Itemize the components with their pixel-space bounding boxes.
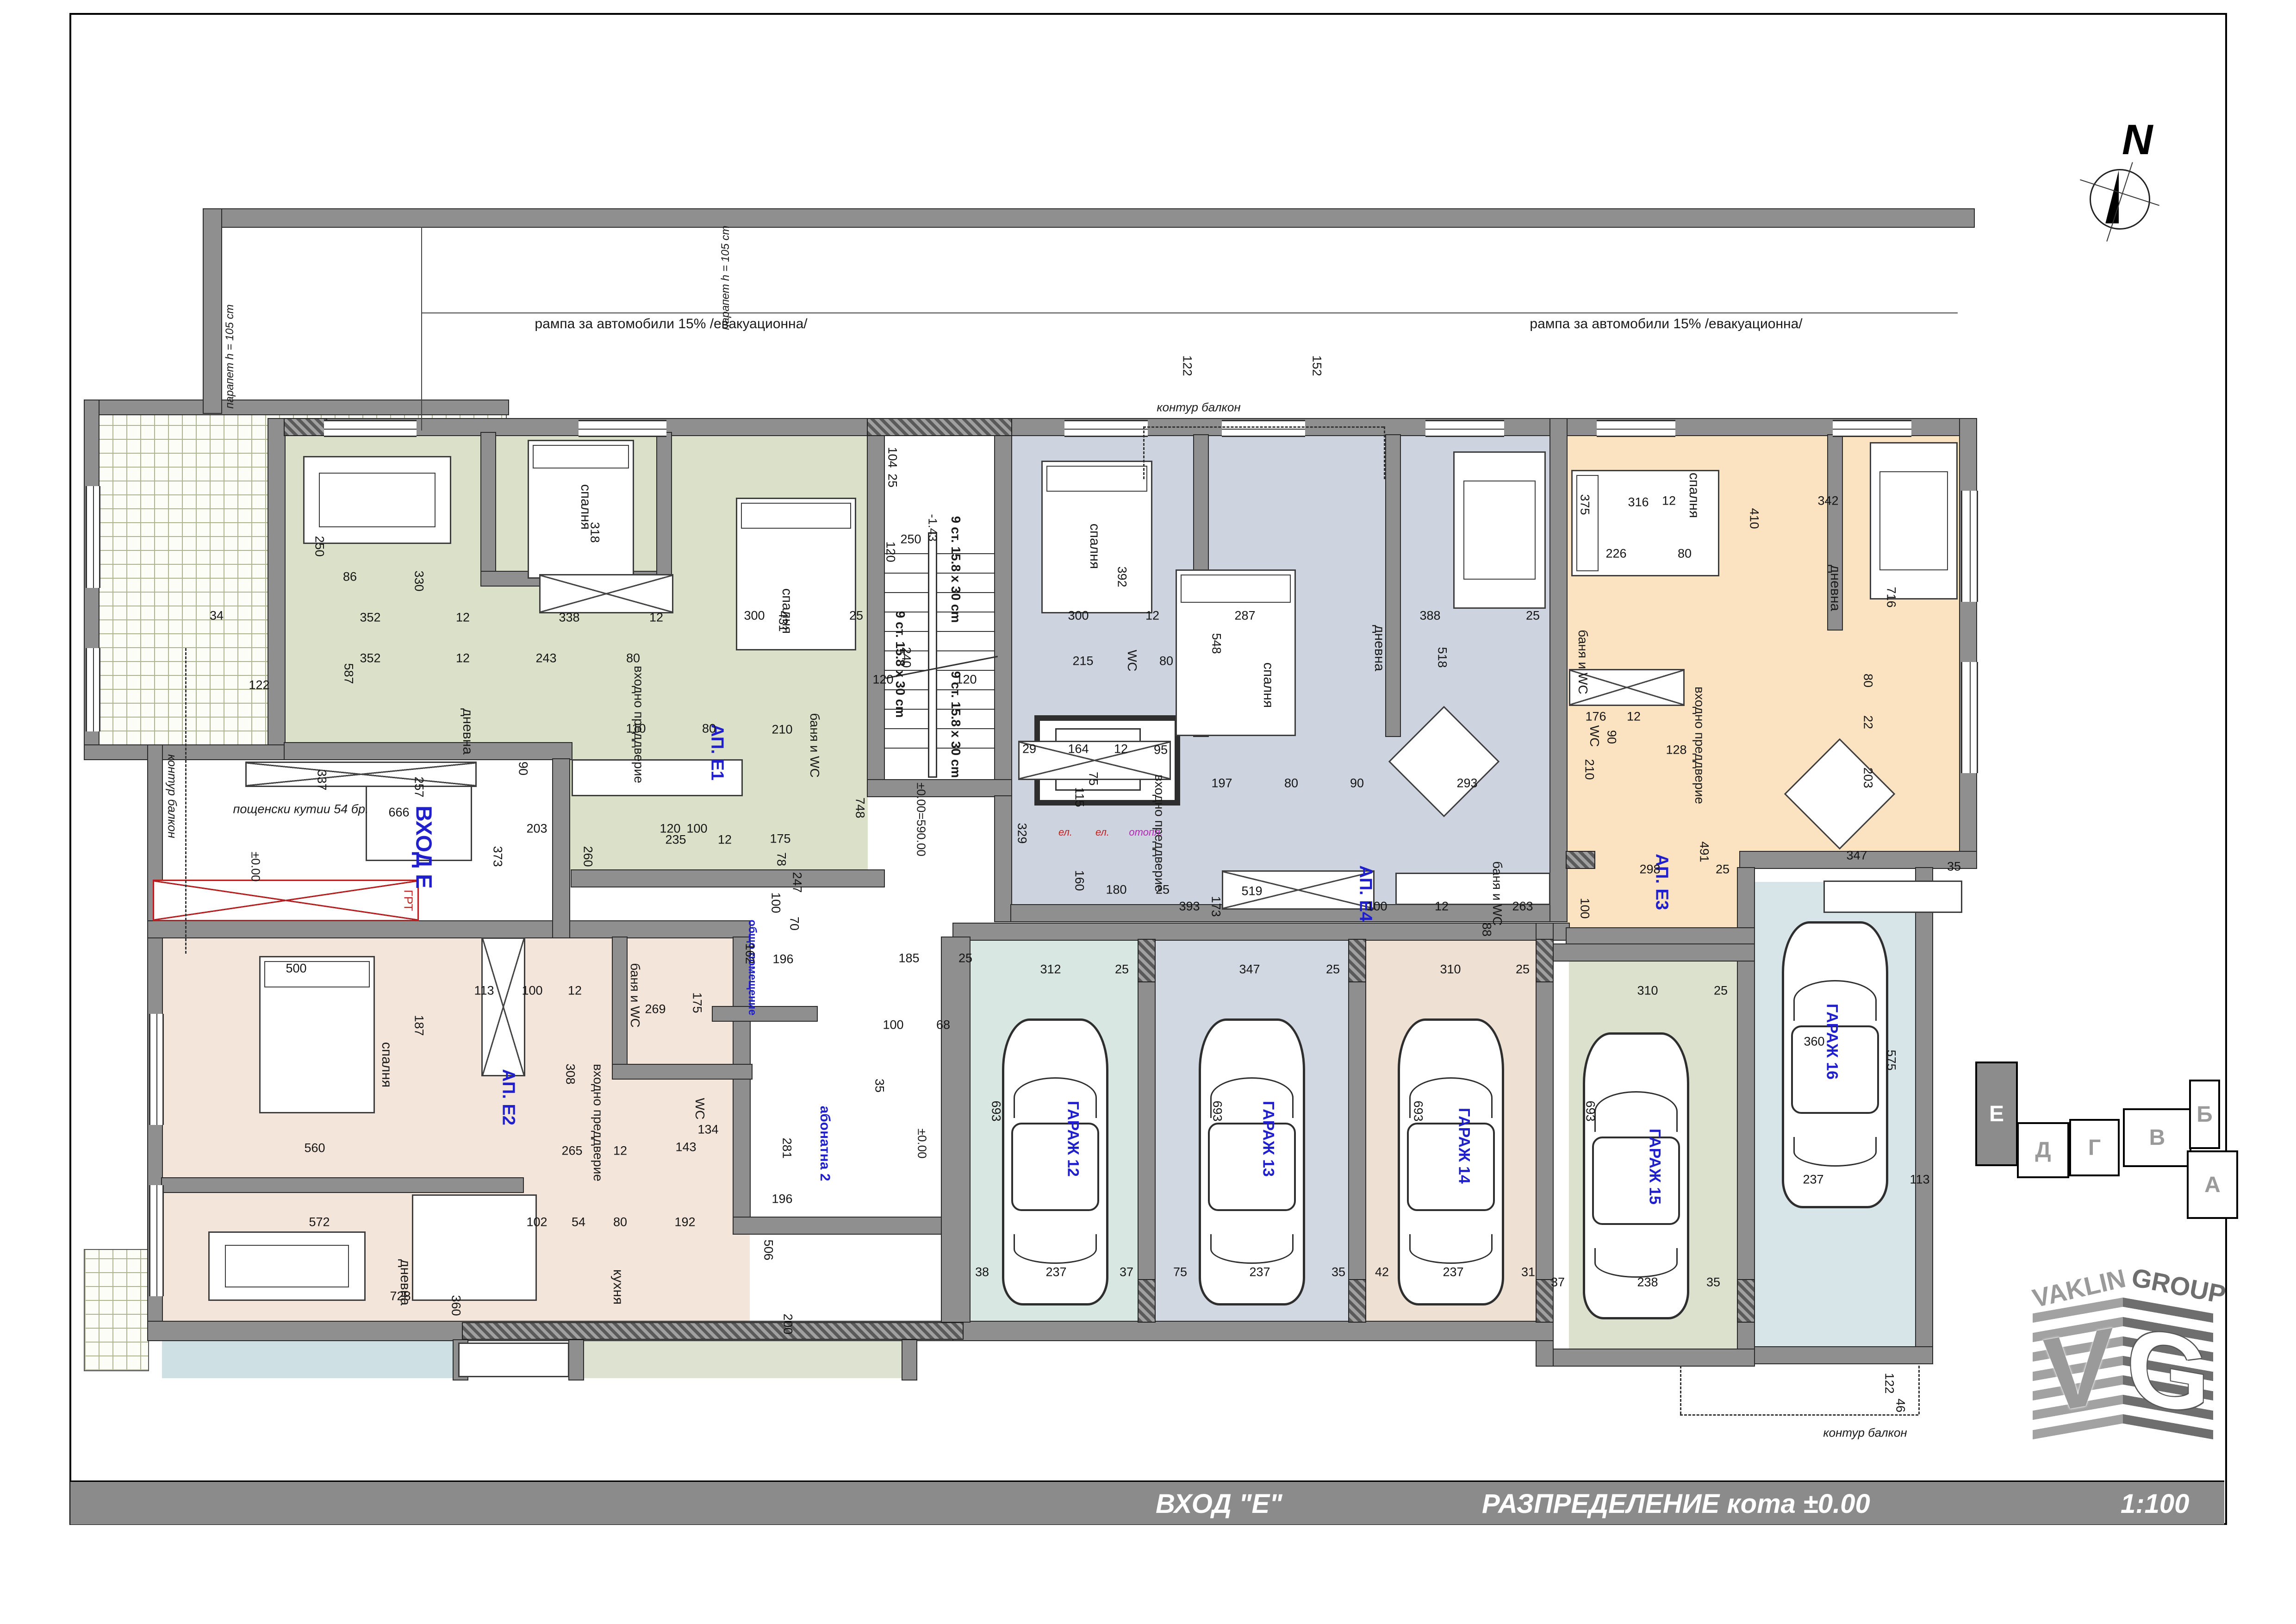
dimension: 78 — [774, 852, 789, 866]
floor-plan: спалняспалнядневнавходно преддвериебаня … — [0, 0, 2296, 1624]
furniture-x — [481, 937, 525, 1076]
dimension: 337 — [315, 769, 329, 790]
wall — [1567, 928, 1754, 944]
window — [1833, 420, 1911, 437]
room-label: входно преддверие — [591, 1064, 605, 1181]
room-label: отопл. — [1129, 826, 1163, 838]
dimension: 25 — [1526, 609, 1540, 623]
room-label: ГАРАЖ 12 — [1064, 1101, 1082, 1177]
dimension: 210 — [1582, 759, 1597, 780]
stair-step — [885, 553, 994, 554]
dimension: 122 — [249, 678, 269, 693]
dimension: 196 — [772, 952, 793, 967]
room-label: баня и WC — [1575, 630, 1590, 694]
wall — [953, 924, 1569, 940]
dimension: 518 — [1435, 647, 1450, 668]
dimension: 260 — [581, 846, 595, 867]
dimension: 250 — [312, 536, 327, 556]
key-plan-section-А: А — [2187, 1150, 2238, 1219]
room-label: контур балкон — [1157, 400, 1240, 415]
hatched-pier — [1537, 1280, 1553, 1322]
dimension: 393 — [1179, 899, 1200, 914]
wall — [942, 937, 970, 1322]
dimension: 342 — [1817, 494, 1838, 508]
dimension: 187 — [412, 1015, 426, 1036]
dimension: 575 — [1884, 1049, 1898, 1070]
dimension: 392 — [1115, 566, 1129, 587]
north-letter: N — [2122, 116, 2153, 164]
dimension: 100 — [883, 1018, 903, 1032]
room-label: абонатна 2 — [817, 1106, 833, 1181]
window — [1961, 491, 1978, 602]
dimension: 75 — [1173, 1265, 1187, 1280]
dimension: 257 — [412, 776, 426, 797]
dimension: 104 — [885, 447, 900, 468]
stair-step — [885, 573, 994, 574]
dimension: 338 — [559, 611, 579, 625]
ramp-line — [421, 227, 422, 431]
window — [149, 1014, 164, 1125]
dimension: 80 — [613, 1215, 627, 1230]
dimension: 128 — [1666, 743, 1686, 757]
dimension: 31 — [1521, 1265, 1535, 1280]
vaklin-group-logo: VAKLIN GROUP V G — [2027, 1245, 2221, 1440]
dashed-contour-line — [185, 648, 187, 954]
dimension: 587 — [342, 663, 356, 684]
dimension: 120 — [956, 673, 977, 687]
dimension: 25 — [1115, 962, 1129, 977]
dimension: 95 — [1154, 743, 1168, 757]
room-label: баня и WC — [807, 713, 822, 777]
room-label: дневна — [1827, 565, 1843, 611]
room-label: контур балкон — [165, 754, 180, 838]
car — [1199, 1018, 1305, 1305]
dimension: 115 — [1072, 787, 1087, 807]
dimension: 12 — [568, 984, 582, 998]
dimension: 330 — [412, 570, 426, 591]
room-label: дневна — [460, 708, 475, 755]
room-label: спалня — [379, 1042, 394, 1087]
dimension: 310 — [1440, 962, 1461, 977]
dimension: 560 — [304, 1141, 325, 1156]
terrace-bottom-left — [85, 1250, 148, 1370]
dimension: 238 — [1637, 1275, 1658, 1290]
dimension: 347 — [1239, 962, 1260, 977]
window — [1064, 420, 1148, 437]
dimension: 12 — [1114, 742, 1128, 756]
dimension: 388 — [1419, 609, 1440, 623]
dimension: 269 — [645, 1002, 666, 1017]
wall — [204, 209, 1974, 227]
window — [1597, 420, 1675, 437]
dimension: 352 — [360, 611, 380, 625]
wall — [953, 1322, 1553, 1340]
dimension: 122 — [1882, 1373, 1897, 1393]
stair-rail — [928, 532, 937, 778]
furniture-box — [458, 1343, 569, 1377]
dimension: 12 — [456, 651, 470, 666]
dimension: 75 — [1086, 772, 1101, 786]
dimension: 173 — [1209, 896, 1223, 917]
wall — [868, 419, 884, 796]
dimension: 80 — [702, 722, 716, 736]
wall — [148, 921, 750, 937]
furniture-xr — [153, 880, 419, 921]
ramp-line — [421, 312, 1958, 313]
dimension: 38 — [975, 1265, 989, 1280]
dimension: 250 — [900, 532, 921, 547]
dimension: 203 — [1861, 767, 1875, 788]
wall — [1349, 940, 1365, 1322]
car — [1398, 1018, 1504, 1305]
zone-low-garage — [583, 1340, 902, 1378]
room-label: спалня — [1260, 662, 1276, 708]
dimension: 318 — [588, 522, 602, 543]
key-plan-section-Г: Г — [2069, 1119, 2120, 1176]
dimension: 113 — [474, 984, 494, 998]
dimension: 80 — [1159, 654, 1173, 668]
dimension: 35 — [1706, 1275, 1720, 1290]
dimension: 329 — [1015, 823, 1029, 843]
dimension: 120 — [884, 541, 898, 562]
window — [579, 420, 666, 437]
dimension: 500 — [286, 962, 306, 976]
dimension: 29 — [1022, 742, 1036, 756]
dashed-contour-line — [1680, 1366, 1681, 1414]
wall — [285, 743, 572, 759]
room-label: WC — [1587, 725, 1602, 747]
dimension: 200 — [781, 1313, 795, 1334]
dimension: 180 — [1106, 883, 1126, 897]
room-label: рампа за автомобили 15% /евакуационна/ — [1530, 316, 1802, 332]
furniture-x — [539, 574, 673, 613]
wall — [572, 870, 884, 887]
dimension: 175 — [770, 832, 790, 846]
dimension: 70 — [787, 917, 802, 931]
dimension: 312 — [1040, 962, 1061, 977]
furniture-x — [245, 762, 477, 787]
dimension: 431 — [776, 611, 790, 631]
dimension: 80 — [1861, 674, 1875, 687]
dimension: 37 — [1551, 1275, 1565, 1290]
dimension: 197 — [1211, 776, 1232, 791]
car — [1002, 1018, 1108, 1305]
furniture-bed — [259, 956, 375, 1113]
dimension: 693 — [989, 1100, 1003, 1121]
car — [1583, 1032, 1689, 1319]
dimension: 308 — [563, 1063, 578, 1084]
room-label: баня и WC — [1490, 861, 1505, 925]
dimension: 666 — [388, 806, 409, 820]
title-bar: ВХОД "Е" РАЗПРЕДЕЛЕНИЕ кота ±0.00 1:100 — [70, 1480, 2224, 1524]
furniture-bed — [736, 498, 856, 650]
dimension: 12 — [456, 611, 470, 625]
dimension: 113 — [1910, 1173, 1929, 1187]
dimension: 263 — [1512, 899, 1533, 914]
key-plan-section-В: В — [2123, 1108, 2191, 1167]
north-arrow: N — [2073, 116, 2194, 269]
window — [149, 1185, 164, 1296]
dimension: 316 — [1628, 495, 1649, 510]
logo-g: G — [2127, 1302, 2209, 1439]
dimension: 35 — [872, 1079, 887, 1093]
dimension: 90 — [1350, 776, 1364, 791]
dimension: 237 — [1803, 1173, 1823, 1187]
room-label: парапет h = 105 cm — [719, 225, 732, 330]
dimension: 80 — [1284, 776, 1298, 791]
dimension: 143 — [675, 1140, 696, 1155]
dimension: 100 — [522, 984, 542, 998]
hatched-pier — [1349, 1280, 1365, 1322]
wall — [734, 1218, 958, 1234]
dimension: 68 — [936, 1018, 950, 1032]
wall — [204, 209, 221, 413]
room-label: общо помещение — [746, 920, 759, 1016]
dimension: 12 — [718, 833, 732, 847]
dimension: 175 — [690, 992, 704, 1013]
room-label: дневна — [1371, 625, 1387, 671]
room-label: ГАРАЖ 13 — [1259, 1101, 1277, 1177]
dimension: 548 — [1209, 633, 1224, 654]
logo-cube-left-face: V — [2033, 1298, 2123, 1443]
hatched-pier — [1349, 940, 1365, 981]
dimension: 185 — [898, 951, 919, 966]
dimension: 293 — [1456, 776, 1477, 791]
dimension: 203 — [526, 822, 547, 836]
dimension: 90 — [1605, 730, 1619, 744]
wall — [1139, 940, 1155, 1322]
wall — [613, 1065, 752, 1079]
dimension: 360 — [449, 1295, 463, 1316]
key-plan-section-Б: Б — [2189, 1080, 2220, 1149]
dimension: 25 — [958, 951, 972, 966]
dimension: 373 — [491, 846, 505, 867]
dimension: 25 — [1516, 962, 1530, 977]
wall — [1960, 419, 1976, 868]
room-label: парапет h = 105 cm — [224, 304, 236, 408]
room-label: спалня — [1087, 524, 1102, 569]
hatched-pier — [1139, 1280, 1155, 1322]
room-label: ВХОД Е — [411, 806, 436, 889]
wall — [995, 796, 1011, 921]
dimension: 375 — [1578, 494, 1592, 515]
room-label: рампа за автомобили 15% /евакуационна/ — [535, 316, 807, 332]
dimension: 12 — [649, 611, 663, 625]
dimension: 12 — [1662, 494, 1676, 508]
room-label: ±0.00=590.00 — [914, 782, 928, 856]
dimension: 90 — [516, 762, 530, 775]
key-plan-section-Д: Д — [2017, 1122, 2069, 1178]
room-label: входно преддверие — [1692, 687, 1707, 804]
window — [1961, 662, 1978, 773]
dimension: 100 — [1578, 898, 1592, 918]
key-plan-section-Е: Е — [1975, 1062, 2018, 1166]
dimension: 298 — [1639, 862, 1660, 877]
dimension: 102 — [526, 1215, 547, 1230]
dashed-contour-line — [1918, 1366, 1920, 1414]
dimension: 12 — [613, 1144, 627, 1158]
room-label: -1.43 — [926, 514, 940, 541]
room-label: кухня — [610, 1269, 626, 1305]
dimension: 506 — [761, 1239, 776, 1260]
furniture-sofa — [1870, 442, 1958, 600]
dimension: 120 — [872, 673, 893, 687]
dimension: 410 — [1747, 508, 1761, 529]
dimension: 25 — [1714, 984, 1728, 998]
window — [1222, 420, 1305, 437]
logo-v: V — [2042, 1303, 2113, 1438]
dimension: 12 — [1627, 710, 1641, 724]
wall — [553, 759, 569, 937]
room-label: ГАРАЖ 14 — [1455, 1108, 1473, 1184]
dimension: 34 — [210, 609, 224, 623]
hatched-pier — [868, 419, 1011, 435]
dimension: 25 — [849, 609, 863, 623]
dashed-contour-line — [1384, 426, 1385, 479]
hatched-pier — [285, 419, 326, 435]
dimension: 243 — [535, 651, 556, 666]
room-label: ±0.00 — [249, 852, 263, 882]
dimension: 352 — [360, 651, 380, 666]
dashed-contour-line — [1680, 1414, 1918, 1416]
dimension: 152 — [1310, 355, 1324, 376]
wall — [713, 1007, 817, 1021]
dimension: 572 — [309, 1215, 330, 1230]
dimension: 120 — [660, 822, 680, 836]
dimension: 192 — [674, 1215, 695, 1230]
dimension: 86 — [343, 570, 357, 584]
stair-step — [885, 592, 994, 593]
dimension: 237 — [1045, 1265, 1066, 1280]
furniture-box — [1823, 881, 1962, 913]
room-label: ГАРАЖ 16 — [1823, 1004, 1841, 1080]
dimension: 25 — [1156, 883, 1170, 897]
dimension: 237 — [1249, 1265, 1270, 1280]
dimension: 360 — [1804, 1035, 1824, 1049]
hatched-pier — [463, 1323, 963, 1339]
dimension: 300 — [744, 609, 765, 623]
dimension: 347 — [1846, 849, 1867, 863]
stair-step — [885, 748, 994, 749]
wall — [1386, 435, 1400, 736]
title-scale: 1:100 — [2121, 1488, 2189, 1519]
dimension: 110 — [626, 722, 646, 736]
logo-cube-right-face: G — [2123, 1298, 2213, 1443]
wall — [1916, 868, 1932, 1363]
dimension: 35 — [1332, 1265, 1345, 1280]
dashed-contour-line — [1143, 426, 1384, 428]
window — [1425, 420, 1504, 437]
room-label: WC — [692, 1098, 707, 1120]
dimension: 25 — [1326, 962, 1340, 977]
wall — [85, 400, 508, 414]
wall — [268, 419, 285, 759]
wall — [868, 780, 1011, 796]
dimension: 88 — [1480, 923, 1494, 937]
window — [86, 648, 100, 731]
dimension: 519 — [1241, 884, 1262, 899]
wall — [1550, 419, 1567, 921]
dimension: 265 — [561, 1144, 582, 1158]
dimension: 46 — [1893, 1399, 1908, 1412]
furniture-bed — [1176, 569, 1296, 736]
furniture-sofa — [303, 456, 451, 544]
dimension: 160 — [1072, 870, 1087, 891]
dimension: 693 — [1583, 1100, 1598, 1121]
wall — [162, 1178, 523, 1192]
dimension: 54 — [572, 1215, 585, 1230]
dimension: 25 — [1716, 862, 1730, 877]
wall — [995, 419, 1011, 796]
wall — [481, 433, 495, 586]
dimension: 281 — [780, 1137, 794, 1158]
furniture-table — [412, 1194, 537, 1301]
wall — [569, 1340, 583, 1380]
dimension: 237 — [1443, 1265, 1463, 1280]
dimension: 100 — [769, 892, 783, 913]
dimension: 300 — [1068, 609, 1089, 623]
zone-low-room — [162, 1340, 454, 1378]
furniture-sofa — [208, 1231, 366, 1301]
wall — [1553, 944, 1754, 961]
dimension: 12 — [1435, 899, 1449, 914]
hatched-pier — [1537, 940, 1553, 981]
dimension: 12 — [1145, 609, 1159, 623]
window — [86, 486, 100, 588]
room-label: АП. Е2 — [498, 1069, 518, 1125]
dimension: 162 — [743, 943, 757, 964]
dimension: 247 — [790, 872, 804, 893]
dimension: 240 — [899, 647, 914, 668]
dimension: 728 — [390, 1289, 411, 1304]
room-label: пощенски кутии 54 бр. — [233, 802, 368, 817]
title-layout: РАЗПРЕДЕЛЕНИЕ кота ±0.00 — [1482, 1488, 1870, 1519]
room-label: ±0.00 — [915, 1129, 929, 1159]
dimension: 80 — [1678, 547, 1692, 561]
dimension: 25 — [885, 474, 900, 487]
room-label: ГРТ — [401, 890, 416, 911]
dimension: 100 — [686, 822, 707, 836]
dashed-contour-line — [1143, 426, 1145, 479]
wall — [1553, 1349, 1754, 1366]
hatched-pier — [1738, 1280, 1754, 1322]
room-label: ел. — [1095, 826, 1109, 838]
room-label: 9 ст. 15.8 x 30 cm — [948, 671, 963, 778]
title-entrance: ВХОД "Е" — [1156, 1488, 1282, 1519]
furniture-sofa — [1453, 451, 1546, 609]
room-label: ГАРАЖ 15 — [1646, 1129, 1664, 1205]
dimension: 310 — [1637, 984, 1658, 998]
dimension: 693 — [1210, 1100, 1225, 1121]
hatched-pier — [1567, 852, 1594, 868]
room-label: контур балкон — [1823, 1426, 1907, 1440]
dimension: 37 — [1120, 1265, 1133, 1280]
wall — [613, 937, 627, 1072]
room-label: баня и WC — [628, 963, 642, 1027]
drawing-sheet: спалняспалнядневнавходно преддвериебаня … — [0, 0, 2296, 1624]
dimension: 491 — [1697, 841, 1711, 862]
dimension: 287 — [1234, 609, 1255, 623]
room-label: 9 ст. 15.8 x 30 cm — [948, 516, 963, 623]
dimension: 226 — [1605, 547, 1626, 561]
hatched-pier — [1139, 940, 1155, 981]
dimension: 210 — [772, 723, 792, 737]
dimension: 196 — [772, 1192, 792, 1206]
dimension: 176 — [1585, 710, 1606, 724]
room-label: WC — [1125, 650, 1139, 672]
stair-step — [885, 728, 994, 729]
dimension: 134 — [697, 1123, 718, 1137]
